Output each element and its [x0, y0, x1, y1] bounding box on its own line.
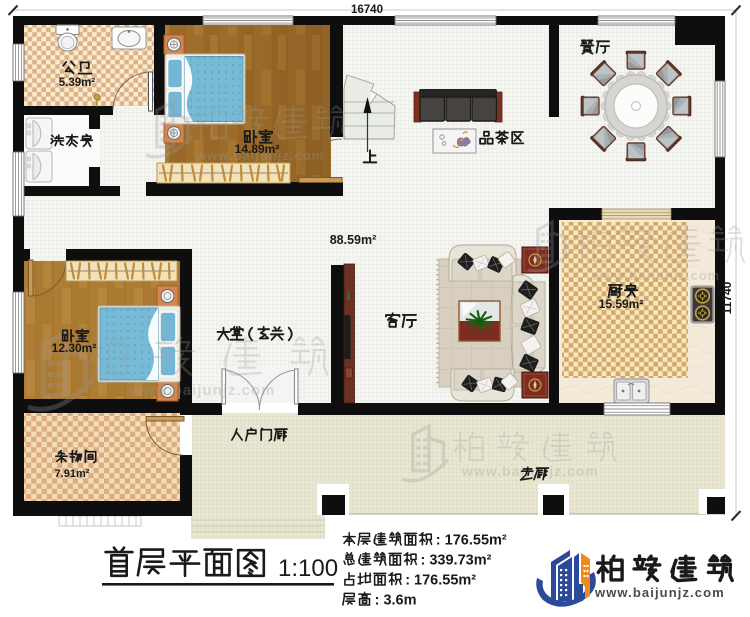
svg-text:5.39m²: 5.39m²: [59, 77, 96, 89]
svg-text:1:100: 1:100: [278, 555, 338, 582]
svg-text:: 176.55m²: : 176.55m²: [436, 532, 507, 548]
svg-text:11740: 11740: [720, 281, 734, 314]
svg-text:15.59m²: 15.59m²: [599, 297, 644, 311]
svg-text:: 176.55m²: : 176.55m²: [405, 572, 476, 588]
svg-text:www.baijunjz.com: www.baijunjz.com: [594, 585, 725, 600]
svg-text:7.91m²: 7.91m²: [55, 468, 90, 480]
svg-text:www.baijunjz.com: www.baijunjz.com: [591, 268, 720, 283]
svg-text:14.89m²: 14.89m²: [235, 142, 280, 156]
svg-text:16740: 16740: [351, 4, 383, 16]
svg-text:12.30m²: 12.30m²: [52, 341, 97, 355]
svg-text:www.baijunjz.com: www.baijunjz.com: [129, 382, 275, 399]
svg-text:88.59m²: 88.59m²: [330, 233, 377, 247]
svg-text:: 3.6m: : 3.6m: [375, 592, 417, 608]
svg-text:: 339.73m²: : 339.73m²: [421, 552, 492, 568]
